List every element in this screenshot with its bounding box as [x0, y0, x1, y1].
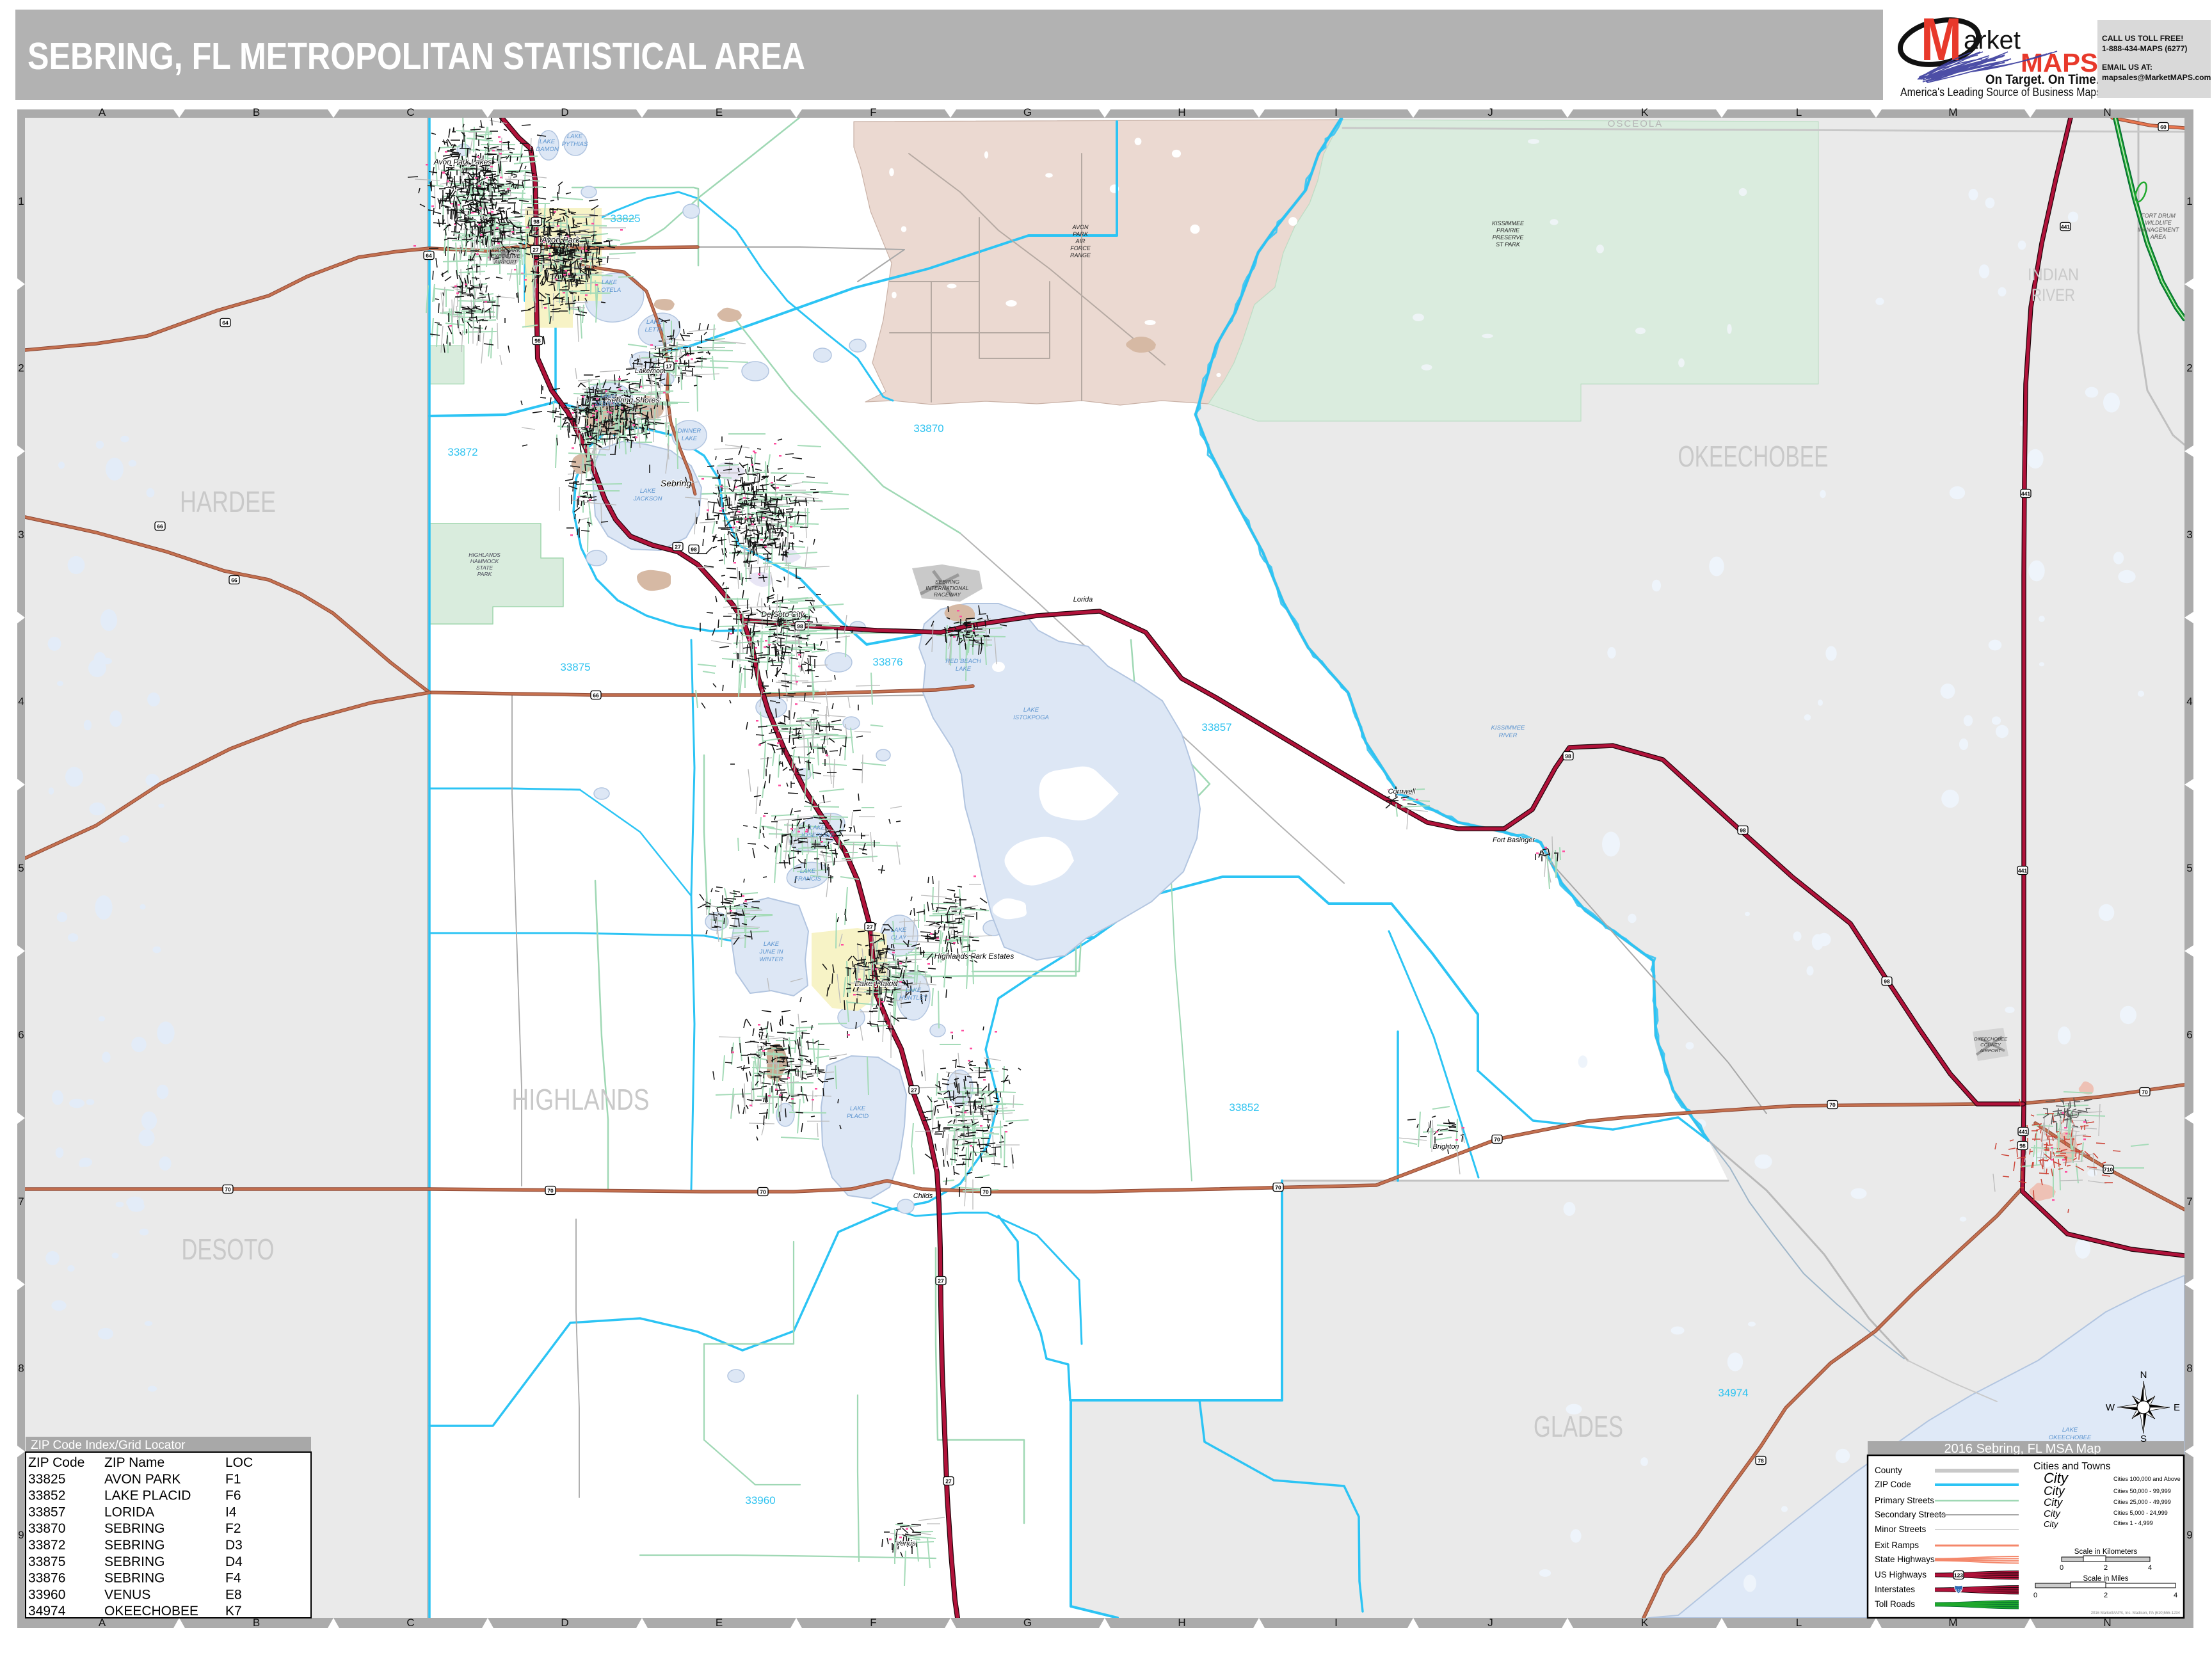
- svg-text:RANGE: RANGE: [1070, 252, 1091, 259]
- svg-text:Sebring: Sebring: [661, 478, 691, 488]
- svg-text:2016 Sebring, FL MSA Map: 2016 Sebring, FL MSA Map: [1944, 1442, 2101, 1456]
- svg-text:Cities 1 - 4,999: Cities 1 - 4,999: [2113, 1520, 2153, 1526]
- svg-text:2016 MarketMAPS, Inc. Madison,: 2016 MarketMAPS, Inc. Madison, PA (610)5…: [2091, 1611, 2181, 1615]
- svg-text:E8: E8: [225, 1587, 242, 1602]
- svg-text:mapsales@MarketMAPS.com: mapsales@MarketMAPS.com: [2102, 73, 2211, 82]
- svg-text:33870: 33870: [28, 1521, 65, 1536]
- svg-text:City: City: [2044, 1496, 2064, 1508]
- svg-text:98: 98: [1884, 979, 1890, 985]
- svg-text:LAKE: LAKE: [602, 279, 618, 286]
- svg-text:D3: D3: [225, 1538, 243, 1553]
- svg-text:33857: 33857: [28, 1505, 65, 1519]
- svg-text:27: 27: [911, 1087, 917, 1094]
- svg-text:M: M: [1948, 106, 1957, 118]
- svg-text:City: City: [2044, 1470, 2069, 1486]
- svg-text:LAKE: LAKE: [567, 133, 583, 140]
- svg-text:33960: 33960: [745, 1494, 775, 1506]
- svg-text:I: I: [1334, 1617, 1338, 1629]
- svg-text:LORIDA: LORIDA: [104, 1505, 154, 1519]
- svg-text:GLADES: GLADES: [1534, 1410, 1623, 1443]
- svg-text:RIVER: RIVER: [2032, 285, 2075, 305]
- svg-text:Cities 5,000 - 24,999: Cities 5,000 - 24,999: [2113, 1510, 2168, 1516]
- svg-text:RED BEACH: RED BEACH: [945, 658, 981, 665]
- svg-text:ZIP Code Index/Grid Locator: ZIP Code Index/Grid Locator: [31, 1439, 186, 1452]
- svg-text:17: 17: [666, 364, 672, 370]
- svg-text:0: 0: [2033, 1592, 2037, 1599]
- svg-text:33825: 33825: [610, 212, 640, 225]
- svg-text:LAKE: LAKE: [646, 319, 662, 326]
- svg-text:Minor Streets: Minor Streets: [1875, 1524, 1927, 1534]
- svg-text:FORT DRUM: FORT DRUM: [2141, 212, 2176, 219]
- svg-text:LAKE: LAKE: [640, 488, 656, 495]
- svg-text:66: 66: [157, 523, 163, 530]
- svg-text:AIRPORT: AIRPORT: [1979, 1048, 2002, 1053]
- svg-text:J: J: [1487, 1617, 1493, 1629]
- svg-text:33960: 33960: [28, 1587, 65, 1602]
- svg-text:SEBRING: SEBRING: [104, 1571, 165, 1586]
- svg-text:70: 70: [2142, 1089, 2148, 1096]
- svg-text:H: H: [1178, 106, 1185, 118]
- svg-text:33852: 33852: [28, 1489, 65, 1503]
- svg-text:K: K: [1641, 1617, 1649, 1629]
- svg-text:MANAGEMENT: MANAGEMENT: [2138, 227, 2180, 233]
- svg-text:KISSIMMEE: KISSIMMEE: [1492, 220, 1525, 227]
- svg-text:LETTA: LETTA: [645, 326, 664, 333]
- svg-text:710: 710: [2104, 1167, 2113, 1173]
- svg-text:66: 66: [231, 577, 237, 584]
- svg-text:70: 70: [1829, 1102, 1836, 1108]
- svg-text:S: S: [2140, 1434, 2147, 1444]
- svg-text:Avon Park Lakes: Avon Park Lakes: [433, 157, 492, 166]
- svg-text:9: 9: [18, 1529, 24, 1541]
- svg-text:ZIP Code: ZIP Code: [1875, 1480, 1911, 1489]
- svg-text:LAKE: LAKE: [1023, 707, 1039, 714]
- svg-text:2: 2: [2104, 1592, 2108, 1599]
- svg-text:Highlands Park Estates: Highlands Park Estates: [934, 952, 1014, 961]
- svg-text:CALL US TOLL FREE!: CALL US TOLL FREE!: [2102, 34, 2183, 43]
- svg-text:5: 5: [2186, 862, 2192, 874]
- svg-text:C: C: [406, 106, 414, 118]
- svg-text:ZIP Code: ZIP Code: [28, 1455, 84, 1470]
- svg-text:34974: 34974: [28, 1604, 66, 1618]
- svg-text:4: 4: [2174, 1592, 2177, 1599]
- svg-text:America's Leading Source of B: America's Leading Source of Business Map…: [1900, 86, 2101, 99]
- svg-text:Lake Placid: Lake Placid: [854, 979, 898, 988]
- svg-text:STATE: STATE: [476, 564, 493, 571]
- svg-text:DINNER: DINNER: [678, 427, 701, 435]
- svg-text:VENUS: VENUS: [104, 1587, 150, 1602]
- svg-text:Lakemont: Lakemont: [635, 367, 666, 375]
- svg-text:SEBRING: SEBRING: [104, 1521, 165, 1536]
- svg-text:27: 27: [938, 1278, 944, 1284]
- svg-text:Interstates: Interstates: [1875, 1585, 1915, 1594]
- svg-text:AVON: AVON: [1071, 224, 1089, 230]
- svg-text:K: K: [1641, 106, 1649, 118]
- svg-text:City: City: [2044, 1508, 2061, 1519]
- svg-text:LAKE: LAKE: [764, 941, 780, 948]
- svg-text:EXECUTIVE: EXECUTIVE: [491, 253, 520, 259]
- svg-text:ZIP Name: ZIP Name: [104, 1455, 164, 1470]
- svg-text:W: W: [2106, 1402, 2115, 1413]
- svg-text:F6: F6: [225, 1489, 241, 1503]
- svg-text:2: 2: [18, 362, 24, 374]
- svg-text:3: 3: [18, 529, 24, 541]
- svg-text:Cities 50,000 - 99,999: Cities 50,000 - 99,999: [2113, 1488, 2171, 1494]
- svg-text:ST PARK: ST PARK: [1496, 241, 1521, 248]
- svg-text:CLAY: CLAY: [891, 934, 907, 941]
- svg-text:OKEECHOBEE: OKEECHOBEE: [104, 1604, 198, 1618]
- svg-text:F: F: [870, 106, 876, 118]
- svg-text:H: H: [1178, 1617, 1185, 1629]
- svg-text:PRAIRIE: PRAIRIE: [1496, 227, 1520, 234]
- svg-text:L: L: [1796, 106, 1802, 118]
- svg-text:LAKE: LAKE: [810, 824, 826, 831]
- svg-text:AVON PARK: AVON PARK: [104, 1472, 180, 1487]
- svg-text:33857: 33857: [1201, 721, 1231, 733]
- svg-text:HAMMOCK: HAMMOCK: [470, 558, 499, 564]
- svg-text:D: D: [561, 106, 568, 118]
- svg-text:PARK: PARK: [477, 571, 492, 577]
- svg-text:LAKE: LAKE: [540, 138, 556, 145]
- svg-text:33876: 33876: [28, 1571, 65, 1586]
- svg-text:OKEECHOBEE: OKEECHOBEE: [2049, 1434, 2092, 1441]
- svg-text:D4: D4: [225, 1554, 243, 1569]
- svg-text:AREA: AREA: [2150, 234, 2167, 240]
- svg-text:KISSIMMEE: KISSIMMEE: [1491, 724, 1525, 731]
- svg-text:Avon Park: Avon Park: [541, 235, 581, 244]
- svg-text:LOC: LOC: [225, 1455, 253, 1470]
- svg-text:OSCEOLA: OSCEOLA: [1608, 118, 1663, 129]
- svg-text:HIGHLANDS: HIGHLANDS: [512, 1083, 650, 1116]
- svg-text:Scale in Miles: Scale in Miles: [2083, 1575, 2129, 1583]
- svg-text:8: 8: [18, 1362, 24, 1374]
- svg-text:C: C: [406, 1617, 414, 1629]
- svg-text:I4: I4: [225, 1505, 237, 1519]
- svg-text:State Highways: State Highways: [1875, 1554, 1935, 1564]
- svg-text:Exit Ramps: Exit Ramps: [1875, 1540, 1919, 1550]
- svg-text:4: 4: [18, 696, 24, 708]
- svg-text:G: G: [1023, 1617, 1032, 1629]
- svg-text:LAKE: LAKE: [2062, 1426, 2078, 1434]
- svg-text:2: 2: [2104, 1564, 2108, 1572]
- svg-text:OKEECHOBEE: OKEECHOBEE: [1974, 1036, 2008, 1042]
- svg-text:LAKE: LAKE: [600, 393, 616, 400]
- svg-text:7: 7: [2186, 1195, 2192, 1208]
- svg-text:33876: 33876: [872, 656, 902, 668]
- svg-text:Cities 25,000 - 49,999: Cities 25,000 - 49,999: [2113, 1499, 2171, 1505]
- svg-text:AVON PARK: AVON PARK: [490, 248, 520, 253]
- svg-text:8: 8: [2186, 1362, 2192, 1374]
- svg-text:N: N: [2140, 1370, 2147, 1380]
- svg-text:B: B: [253, 106, 260, 118]
- svg-text:PYTHIAS: PYTHIAS: [562, 141, 588, 148]
- svg-text:70: 70: [547, 1188, 554, 1194]
- svg-text:4: 4: [2148, 1564, 2152, 1572]
- svg-text:LOTELA: LOTELA: [598, 287, 621, 294]
- svg-text:AIRPORT: AIRPORT: [493, 259, 518, 265]
- svg-text:70: 70: [1494, 1137, 1500, 1143]
- svg-text:70: 70: [982, 1189, 989, 1195]
- svg-text:441: 441: [2021, 491, 2030, 497]
- svg-text:County: County: [1875, 1466, 1902, 1475]
- svg-text:PARK: PARK: [1073, 231, 1089, 237]
- svg-text:Childs: Childs: [913, 1192, 933, 1200]
- svg-text:70: 70: [225, 1187, 231, 1193]
- svg-text:F: F: [870, 1617, 876, 1629]
- svg-text:INTERNATIONAL: INTERNATIONAL: [926, 585, 969, 591]
- svg-text:HUNTLEY: HUNTLEY: [899, 995, 928, 1002]
- svg-text:LAKE PLACID: LAKE PLACID: [104, 1489, 191, 1503]
- svg-text:Cornwell: Cornwell: [1388, 788, 1416, 795]
- svg-text:L: L: [1796, 1617, 1802, 1629]
- svg-text:A: A: [99, 106, 106, 118]
- svg-text:INDIAN: INDIAN: [2028, 265, 2079, 284]
- svg-text:78: 78: [1758, 1458, 1764, 1464]
- svg-text:D: D: [561, 1617, 568, 1629]
- svg-text:Scale in Kilometers: Scale in Kilometers: [2074, 1548, 2138, 1556]
- svg-text:1: 1: [2186, 195, 2192, 207]
- svg-text:98: 98: [797, 623, 803, 630]
- svg-text:27: 27: [533, 247, 539, 253]
- svg-text:98: 98: [2019, 1143, 2026, 1149]
- svg-text:E: E: [2174, 1402, 2180, 1413]
- svg-text:98: 98: [1565, 753, 1571, 760]
- svg-text:US Highways: US Highways: [1875, 1570, 1927, 1579]
- svg-text:WINTER: WINTER: [759, 956, 783, 963]
- svg-text:arket: arket: [1964, 26, 2021, 54]
- svg-text:Toll Roads: Toll Roads: [1875, 1599, 1915, 1609]
- svg-text:SEBRING: SEBRING: [104, 1554, 165, 1569]
- svg-text:33852: 33852: [1229, 1101, 1259, 1114]
- svg-text:Primary Streets: Primary Streets: [1875, 1496, 1934, 1505]
- svg-text:123: 123: [1954, 1572, 1963, 1579]
- svg-text:34974: 34974: [1718, 1387, 1748, 1399]
- svg-text:3: 3: [2186, 529, 2192, 541]
- svg-text:9: 9: [2186, 1529, 2192, 1541]
- svg-text:LAKE: LAKE: [956, 666, 972, 673]
- svg-text:JOSEPHINE: JOSEPHINE: [799, 832, 835, 839]
- svg-text:JUNE IN: JUNE IN: [759, 948, 783, 955]
- svg-text:F2: F2: [225, 1521, 241, 1536]
- svg-text:Venus: Venus: [896, 1540, 916, 1547]
- svg-text:1: 1: [18, 195, 24, 207]
- svg-text:64: 64: [426, 253, 432, 259]
- svg-text:LAKE: LAKE: [682, 435, 698, 442]
- svg-text:4: 4: [2186, 696, 2192, 708]
- svg-text:6: 6: [2186, 1028, 2192, 1041]
- svg-text:33875: 33875: [560, 661, 590, 673]
- svg-text:123: 123: [1955, 1590, 1962, 1594]
- svg-text:FRANCIS: FRANCIS: [794, 875, 821, 883]
- svg-text:1-888-434-MAPS (6277): 1-888-434-MAPS (6277): [2102, 44, 2187, 53]
- svg-text:DESOTO: DESOTO: [182, 1233, 275, 1266]
- svg-text:33875: 33875: [28, 1554, 65, 1569]
- svg-text:70: 70: [1275, 1185, 1281, 1191]
- svg-text:2: 2: [2186, 362, 2192, 374]
- svg-text:JACKSON: JACKSON: [633, 495, 662, 502]
- svg-text:98: 98: [1740, 827, 1746, 834]
- svg-text:Fort Basinger: Fort Basinger: [1493, 836, 1535, 844]
- svg-text:SEBRING, FL METROPOLITAN STATI: SEBRING, FL METROPOLITAN STATISTICAL ARE…: [28, 35, 805, 77]
- svg-text:Cities 100,000 and Above: Cities 100,000 and Above: [2113, 1476, 2181, 1482]
- svg-text:N: N: [2103, 106, 2111, 118]
- svg-text:PRESERVE: PRESERVE: [1493, 234, 1525, 241]
- svg-text:LAKE: LAKE: [800, 868, 816, 875]
- svg-text:SEBRING: SEBRING: [104, 1538, 165, 1553]
- svg-text:OKEECHOBEE: OKEECHOBEE: [1678, 440, 1829, 473]
- svg-text:27: 27: [945, 1478, 952, 1485]
- svg-text:441: 441: [2018, 868, 2027, 874]
- svg-text:33872: 33872: [28, 1538, 65, 1553]
- svg-text:Brighton: Brighton: [1433, 1143, 1459, 1151]
- svg-text:64: 64: [222, 320, 228, 326]
- svg-text:33825: 33825: [28, 1472, 65, 1487]
- svg-text:J: J: [1487, 106, 1493, 118]
- svg-text:LAKE: LAKE: [906, 987, 922, 994]
- svg-text:6: 6: [18, 1028, 24, 1041]
- svg-text:FORCE: FORCE: [1070, 245, 1091, 252]
- svg-text:City: City: [2044, 1519, 2059, 1529]
- svg-text:PLACID: PLACID: [847, 1113, 869, 1120]
- svg-text:ISTOKPOGA: ISTOKPOGA: [1013, 714, 1049, 721]
- svg-text:AIR: AIR: [1075, 238, 1086, 244]
- svg-text:441: 441: [2061, 224, 2070, 230]
- svg-text:G: G: [1023, 106, 1032, 118]
- svg-text:I: I: [1334, 106, 1338, 118]
- svg-text:E: E: [716, 1617, 723, 1629]
- svg-text:98: 98: [534, 338, 541, 344]
- svg-text:0: 0: [2060, 1564, 2064, 1572]
- svg-text:WILDLIFE: WILDLIFE: [2145, 220, 2172, 226]
- svg-text:De Soto City: De Soto City: [761, 610, 805, 619]
- svg-text:27: 27: [675, 544, 681, 550]
- svg-text:LAKE: LAKE: [891, 927, 907, 934]
- svg-text:HARDEE: HARDEE: [180, 485, 276, 518]
- svg-text:F4: F4: [225, 1571, 241, 1586]
- svg-text:441: 441: [2019, 1129, 2028, 1135]
- svg-text:RIVER: RIVER: [1498, 732, 1517, 739]
- svg-text:70: 70: [760, 1189, 766, 1195]
- svg-text:SEBRING: SEBRING: [935, 579, 960, 585]
- svg-text:RACEWAY: RACEWAY: [934, 591, 962, 598]
- svg-text:98: 98: [533, 219, 540, 225]
- svg-text:98: 98: [691, 547, 697, 553]
- svg-text:HIGHLANDS: HIGHLANDS: [469, 552, 501, 558]
- svg-text:K7: K7: [225, 1604, 242, 1618]
- svg-text:DAMON: DAMON: [536, 146, 559, 153]
- svg-text:COUNTY: COUNTY: [1980, 1042, 2001, 1048]
- svg-text:33872: 33872: [447, 446, 477, 458]
- svg-text:27: 27: [867, 924, 873, 931]
- svg-text:EMAIL US AT:: EMAIL US AT:: [2102, 63, 2152, 72]
- svg-text:F1: F1: [225, 1472, 241, 1487]
- svg-text:33870: 33870: [913, 422, 943, 435]
- svg-text:SEBRING: SEBRING: [595, 401, 622, 408]
- svg-text:Lorida: Lorida: [1073, 596, 1093, 603]
- svg-text:66: 66: [593, 692, 599, 699]
- svg-text:60: 60: [2160, 124, 2167, 131]
- svg-text:5: 5: [18, 862, 24, 874]
- svg-text:E: E: [716, 106, 723, 118]
- svg-text:On Target. On Time.: On Target. On Time.: [1985, 72, 2099, 87]
- svg-text:LAKE: LAKE: [850, 1105, 866, 1112]
- svg-text:7: 7: [18, 1195, 24, 1208]
